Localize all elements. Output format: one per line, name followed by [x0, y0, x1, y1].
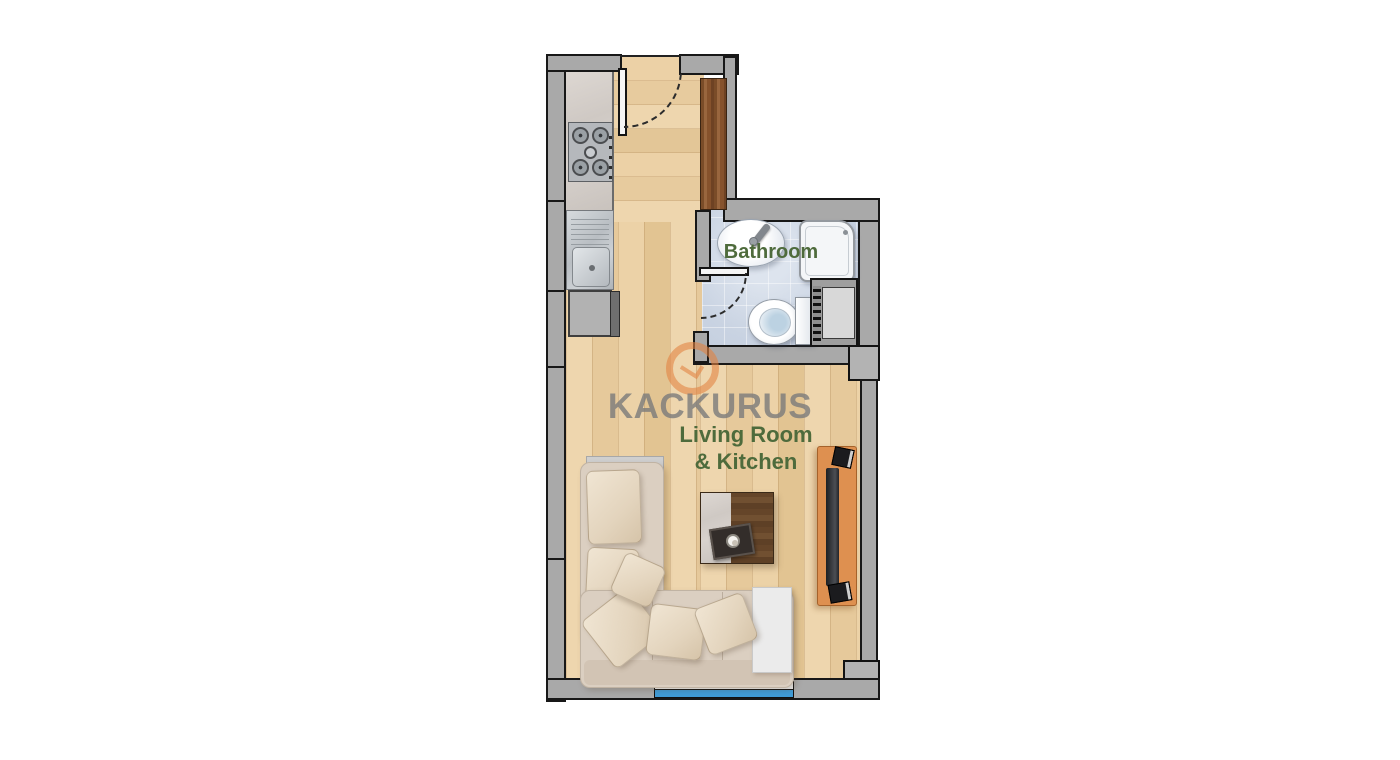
- burner-icon: [572, 159, 589, 176]
- shower-drain-icon: [843, 230, 848, 235]
- side-table: [752, 587, 792, 673]
- sofa-back-cushion: [586, 469, 643, 545]
- entry-threshold-line: [620, 55, 681, 57]
- speaker-icon: [828, 581, 853, 604]
- living-room-label-line2: & Kitchen: [640, 448, 852, 475]
- stove-knob-icon: [584, 146, 597, 159]
- wall-pillar-right-mid: [848, 345, 880, 381]
- closet: [700, 78, 727, 210]
- sink-drainboard: [571, 215, 609, 245]
- tv-screen-icon: [826, 468, 839, 586]
- sink-basin-icon: [572, 247, 610, 287]
- logo-mark: [680, 357, 704, 379]
- burner-icon: [592, 127, 609, 144]
- duct-shaft: [810, 278, 858, 347]
- toilet-seat: [759, 308, 791, 337]
- wall-right-living: [860, 379, 878, 663]
- burner-icon: [592, 159, 609, 176]
- kitchen-sink-unit: [566, 210, 614, 290]
- wall-left-segment: [546, 290, 566, 368]
- window-glass: [654, 689, 794, 698]
- cup-icon: [726, 534, 740, 548]
- floor-plan-canvas: Bathroom KACKURUS Living Room & Kitchen: [0, 0, 1400, 760]
- wall-left-segment: [546, 54, 566, 202]
- wall-left-segment: [546, 366, 566, 560]
- burner-icon: [572, 127, 589, 144]
- toilet-bowl-icon: [748, 299, 800, 345]
- sink-drain-icon: [589, 265, 595, 271]
- wall-left-segment: [546, 200, 566, 292]
- bathroom-label: Bathroom: [704, 241, 838, 264]
- duct-shaft-inner: [822, 287, 855, 339]
- counter-end-panel: [610, 291, 620, 337]
- duct-grille-icon: [813, 286, 821, 341]
- kitchen-cabinet: [568, 290, 612, 337]
- stove-controls: [609, 129, 612, 179]
- living-room-label-line1: Living Room: [640, 421, 852, 448]
- living-room-label: Living Room & Kitchen: [640, 421, 852, 475]
- stove-icon: [568, 122, 613, 182]
- cup-inner: [732, 540, 738, 546]
- wall-top-left: [546, 54, 622, 72]
